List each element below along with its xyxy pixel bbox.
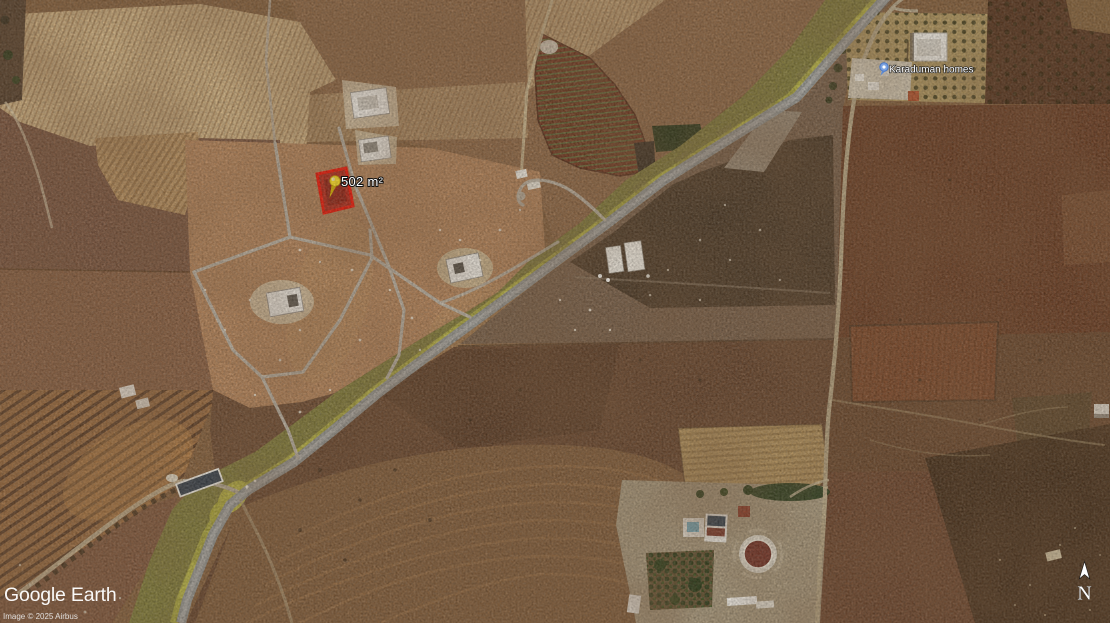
svg-text:Google Earth: Google Earth xyxy=(4,584,117,606)
svg-text:502 m²: 502 m² xyxy=(341,174,384,189)
svg-text:Image © 2025 Airbus: Image © 2025 Airbus xyxy=(3,612,78,621)
svg-text:N: N xyxy=(1077,583,1091,605)
svg-text:Karaduman homes: Karaduman homes xyxy=(889,65,974,76)
